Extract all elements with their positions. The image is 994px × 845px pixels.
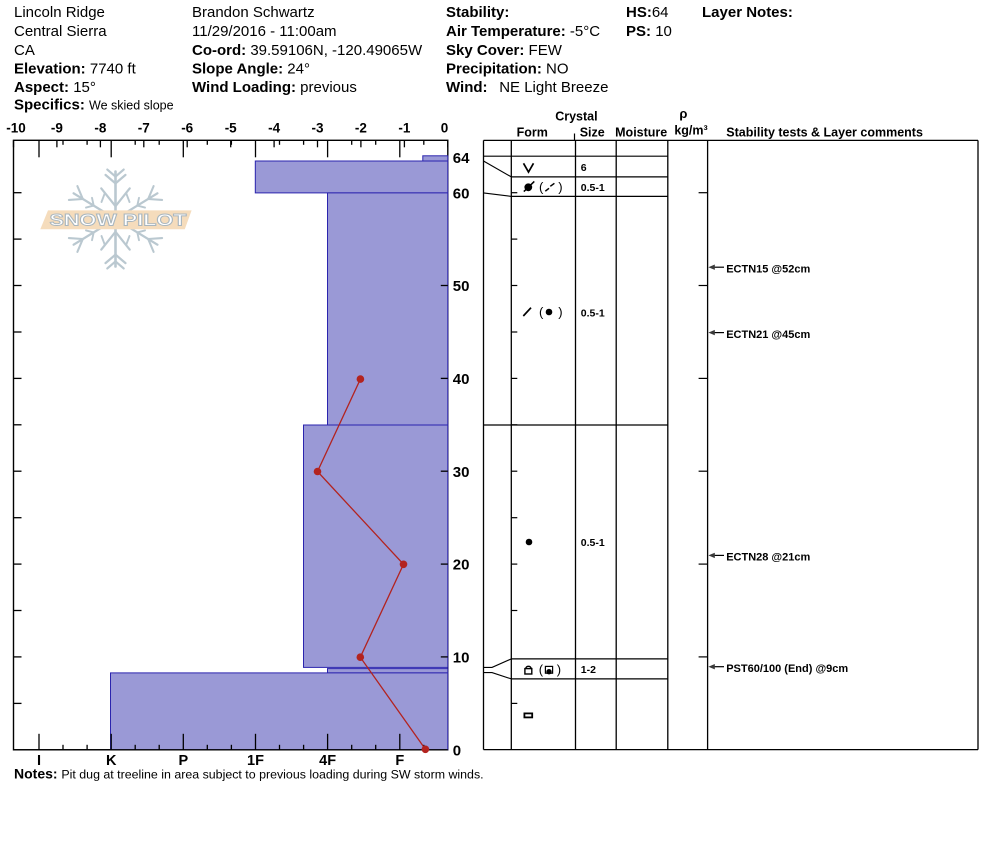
svg-text:(: ( xyxy=(539,305,544,320)
svg-text:40: 40 xyxy=(453,371,470,388)
svg-text:(: ( xyxy=(539,662,544,677)
svg-text:-3: -3 xyxy=(311,121,323,136)
svg-text:Notes:: Notes: xyxy=(14,765,58,781)
svg-text:-9: -9 xyxy=(51,121,63,136)
svg-text:PS: 10: PS: 10 xyxy=(626,23,672,40)
svg-text:-10: -10 xyxy=(6,121,26,136)
svg-text:Wind Loading: previous: Wind Loading: previous xyxy=(192,79,357,96)
svg-text:Lincoln Ridge: Lincoln Ridge xyxy=(14,4,105,21)
svg-text:Layer Notes:: Layer Notes: xyxy=(702,4,793,21)
svg-text:-2: -2 xyxy=(355,121,367,136)
svg-text:Size: Size xyxy=(580,125,605,139)
svg-text:Wind: NE Light Breeze: Wind: NE Light Breeze xyxy=(446,79,608,96)
svg-text:10: 10 xyxy=(453,650,470,667)
svg-text:HS:64: HS:64 xyxy=(626,4,669,21)
svg-text:Specifics: We skied slope: Specifics: We skied slope xyxy=(14,97,174,114)
svg-text:SNOW PILOT: SNOW PILOT xyxy=(50,211,188,230)
svg-text:0: 0 xyxy=(453,742,461,759)
svg-text:Moisture: Moisture xyxy=(615,125,667,139)
svg-text:50: 50 xyxy=(453,278,470,295)
svg-text:Slope Angle: 24°: Slope Angle: 24° xyxy=(192,61,310,78)
svg-text:64: 64 xyxy=(453,150,470,167)
svg-text:ρ: ρ xyxy=(679,106,687,121)
svg-text:-4: -4 xyxy=(268,121,280,136)
svg-text:-6: -6 xyxy=(181,121,193,136)
svg-text:Co-ord: 39.59106N, -120.49065W: Co-ord: 39.59106N, -120.49065W xyxy=(192,42,423,59)
svg-text:0.5-1: 0.5-1 xyxy=(581,537,605,549)
svg-text:ECTN28 @21cm: ECTN28 @21cm xyxy=(726,552,810,564)
svg-text:11/29/2016 - 11:00am: 11/29/2016 - 11:00am xyxy=(192,23,337,40)
svg-text:Elevation: 7740 ft: Elevation: 7740 ft xyxy=(14,61,137,78)
svg-text:(: ( xyxy=(539,180,544,195)
svg-text:Brandon Schwartz: Brandon Schwartz xyxy=(192,4,315,21)
svg-text:CA: CA xyxy=(14,42,35,59)
svg-text:Central Sierra: Central Sierra xyxy=(14,23,107,40)
svg-text:Stability tests & Layer commen: Stability tests & Layer comments xyxy=(726,125,923,139)
svg-text:0.5-1: 0.5-1 xyxy=(581,307,605,319)
svg-text:Air Temperature: -5°C: Air Temperature: -5°C xyxy=(446,23,600,40)
svg-text:): ) xyxy=(557,662,561,677)
svg-text:Crystal: Crystal xyxy=(555,110,597,124)
svg-text:Form: Form xyxy=(517,125,548,139)
svg-text:6: 6 xyxy=(581,162,587,174)
svg-text:ECTN15 @52cm: ECTN15 @52cm xyxy=(726,263,810,275)
svg-text:Sky Cover: FEW: Sky Cover: FEW xyxy=(446,42,563,59)
svg-text:Pit dug at treeline in area su: Pit dug at treeline in area subject to p… xyxy=(61,767,483,781)
svg-text:Stability:: Stability: xyxy=(446,4,509,21)
svg-text:60: 60 xyxy=(453,185,470,202)
svg-text:PST60/100 (End) @9cm: PST60/100 (End) @9cm xyxy=(726,663,848,675)
svg-text:0.5-1: 0.5-1 xyxy=(581,182,605,194)
svg-text:30: 30 xyxy=(453,464,470,481)
svg-text:0: 0 xyxy=(441,121,449,136)
svg-text:-5: -5 xyxy=(225,121,237,136)
svg-text:): ) xyxy=(558,305,562,320)
svg-text:1-2: 1-2 xyxy=(581,664,596,676)
svg-text:Precipitation: NO: Precipitation: NO xyxy=(446,61,569,78)
svg-text:kg/m³: kg/m³ xyxy=(674,123,707,137)
svg-text:-1: -1 xyxy=(398,121,410,136)
svg-text:20: 20 xyxy=(453,557,470,574)
svg-text:-8: -8 xyxy=(94,121,106,136)
svg-text:-7: -7 xyxy=(138,121,150,136)
svg-text:): ) xyxy=(558,180,562,195)
svg-text:ECTN21 @45cm: ECTN21 @45cm xyxy=(726,329,810,341)
svg-text:Aspect: 15°: Aspect: 15° xyxy=(14,79,96,96)
